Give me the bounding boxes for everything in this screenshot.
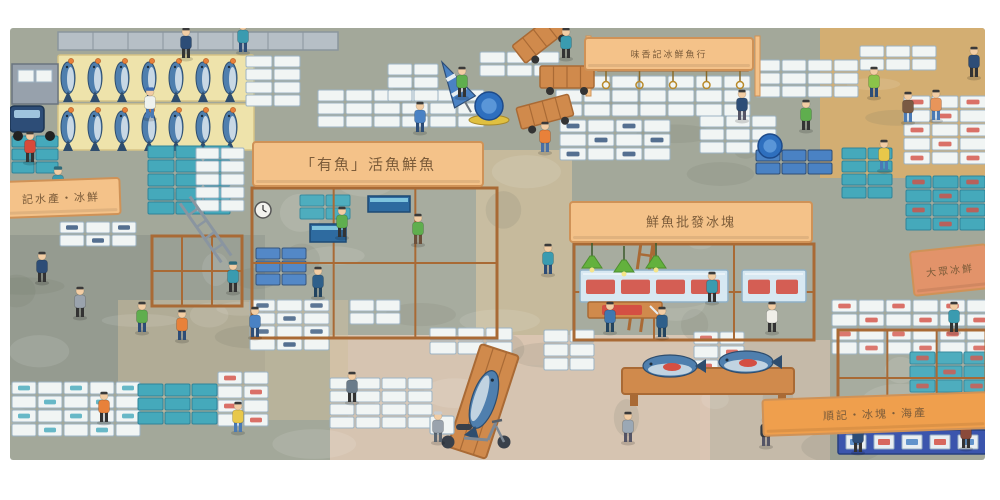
fish-in-box xyxy=(96,428,108,433)
foam-box xyxy=(808,150,832,161)
person-leg xyxy=(416,122,419,132)
fish-belly xyxy=(229,67,236,91)
foam-box xyxy=(274,82,300,93)
foam-box xyxy=(382,378,406,389)
person-torso xyxy=(337,215,348,228)
foam-box xyxy=(430,116,456,127)
foam-box xyxy=(912,46,936,57)
barrel-lid xyxy=(481,98,496,113)
scooter-seat xyxy=(456,424,472,430)
person-leg xyxy=(343,227,346,237)
person-leg xyxy=(182,48,185,58)
person-hair xyxy=(870,67,877,70)
foam-box xyxy=(374,103,400,114)
person-leg xyxy=(143,322,146,332)
foam-box xyxy=(86,222,110,233)
foam-box xyxy=(842,161,866,172)
auction-tag xyxy=(230,58,235,63)
foam-box xyxy=(244,400,268,412)
foam-box xyxy=(644,148,670,160)
person-leg xyxy=(611,322,614,332)
rail-post xyxy=(755,36,760,96)
person-torso xyxy=(737,98,748,111)
fish-in-box xyxy=(623,124,636,129)
foam-box xyxy=(408,391,432,402)
fish-in-box xyxy=(122,386,134,391)
person-hair xyxy=(541,122,548,125)
foam-box xyxy=(700,142,724,153)
foam-box xyxy=(640,104,666,116)
signboard-shade xyxy=(573,236,809,239)
fish-in-box xyxy=(939,194,952,199)
person-leg xyxy=(854,442,857,452)
person-leg xyxy=(738,110,741,120)
foam-box xyxy=(868,187,892,198)
person-leg xyxy=(458,87,461,97)
water-barrel xyxy=(758,134,782,158)
person-leg xyxy=(962,438,965,448)
person-leg xyxy=(955,322,958,332)
foam-box xyxy=(192,398,217,410)
foam-box xyxy=(644,120,670,132)
person-shadow xyxy=(759,445,773,450)
person-leg xyxy=(319,287,322,297)
foam-box xyxy=(544,358,568,370)
foam-box xyxy=(221,174,244,185)
person-leg xyxy=(439,432,442,442)
person-torso xyxy=(903,100,914,113)
person-torso xyxy=(347,380,358,393)
foam-box xyxy=(246,95,272,106)
auction-tag xyxy=(203,107,208,112)
floor-texture xyxy=(492,155,561,188)
foam-box xyxy=(148,174,174,186)
fish-eye xyxy=(201,66,203,68)
truck-cargo-box xyxy=(36,70,52,82)
person-hair xyxy=(26,132,33,135)
foam-box xyxy=(782,150,806,161)
person-leg xyxy=(38,272,41,282)
person-leg xyxy=(950,322,953,332)
foam-box xyxy=(36,149,58,160)
person-leg xyxy=(624,432,627,442)
person-shadow xyxy=(236,51,250,56)
person-leg xyxy=(348,392,351,402)
foam-box xyxy=(588,148,614,160)
person-torso xyxy=(137,310,148,323)
person-shadow xyxy=(97,421,111,426)
foam-box xyxy=(250,339,275,350)
foam-box xyxy=(304,339,329,350)
fish-in-box xyxy=(18,414,30,419)
sign-live-fish-text: 「有魚」活魚鮮魚 xyxy=(300,156,436,174)
foam-box xyxy=(612,76,638,88)
person-leg xyxy=(562,48,565,58)
person-hair xyxy=(314,267,321,270)
foam-box xyxy=(480,52,505,63)
person-leg xyxy=(229,282,232,292)
foam-box xyxy=(756,163,780,174)
foam-box xyxy=(668,104,694,116)
fish-in-box xyxy=(18,386,30,391)
fish-eye xyxy=(93,66,95,68)
tuna-slab xyxy=(656,280,685,294)
foam-box xyxy=(148,146,174,158)
display-case xyxy=(742,270,806,302)
foam-box xyxy=(374,116,400,127)
fish-eye xyxy=(201,115,203,117)
person-torso xyxy=(433,420,444,433)
cart-wheel xyxy=(580,87,588,95)
foam-box xyxy=(356,417,380,428)
banner-photo-fish xyxy=(934,439,946,445)
person-leg xyxy=(178,330,181,340)
table-leg xyxy=(630,394,638,406)
foam-box xyxy=(356,378,380,389)
person-shadow xyxy=(621,441,635,446)
person-shadow xyxy=(541,273,555,278)
fish-in-box xyxy=(919,318,932,323)
foam-box xyxy=(274,56,300,67)
person-leg xyxy=(875,87,878,97)
foam-box xyxy=(584,104,610,116)
floor-texture xyxy=(272,429,356,459)
foam-box xyxy=(696,90,722,102)
person-leg xyxy=(859,442,862,452)
auction-tag xyxy=(149,58,154,63)
foam-box xyxy=(246,82,272,93)
fish-eye xyxy=(147,66,149,68)
person-torso xyxy=(931,98,942,111)
person-torso xyxy=(657,315,668,328)
person-shadow xyxy=(538,151,552,156)
person-torso xyxy=(415,110,426,123)
auction-tag xyxy=(68,107,73,112)
fish-eye xyxy=(726,359,729,362)
foam-box xyxy=(138,412,163,424)
fish-in-box xyxy=(92,238,104,242)
fish-in-box xyxy=(651,138,664,143)
auction-tag xyxy=(122,58,127,63)
cutting-table xyxy=(588,302,662,318)
person-hair xyxy=(38,252,45,255)
foam-box xyxy=(668,90,694,102)
person-hat xyxy=(434,411,442,414)
foam-box xyxy=(616,134,642,146)
person-hair xyxy=(414,214,421,217)
foam-box xyxy=(346,116,372,127)
person-leg xyxy=(909,112,912,122)
auction-tag xyxy=(68,58,73,63)
foam-box xyxy=(640,76,666,88)
person-torso xyxy=(238,30,249,43)
person-shadow xyxy=(735,119,749,124)
foam-box xyxy=(932,152,958,164)
foam-box xyxy=(694,346,718,358)
fish-in-box xyxy=(70,386,82,391)
person-leg xyxy=(629,432,632,442)
person-leg xyxy=(541,142,544,152)
fish-tank xyxy=(368,196,410,212)
foam-box xyxy=(612,104,638,116)
foam-box xyxy=(859,300,884,312)
fish-eye xyxy=(66,66,68,68)
banner-photo-fish xyxy=(906,439,918,445)
person-leg xyxy=(314,287,317,297)
person-shadow xyxy=(603,331,617,336)
person-hair xyxy=(658,307,665,310)
foam-box xyxy=(842,174,866,185)
person-leg xyxy=(870,87,873,97)
person-leg xyxy=(138,322,141,332)
fish-in-box xyxy=(250,418,262,423)
foam-box xyxy=(165,384,190,396)
scooter-floorboard xyxy=(464,438,488,440)
fish-in-box xyxy=(939,114,952,119)
person-hair xyxy=(708,272,715,275)
floor-texture xyxy=(9,335,69,367)
foam-box xyxy=(148,160,174,172)
display-case xyxy=(580,270,728,302)
foam-box xyxy=(560,134,586,146)
sign-left-ice-text: 記水產・冰鮮 xyxy=(22,190,100,207)
person-hair xyxy=(182,28,189,31)
fish-cut xyxy=(663,363,681,371)
person-leg xyxy=(31,152,34,162)
foam-box xyxy=(12,424,36,436)
person-leg xyxy=(544,264,547,274)
person-leg xyxy=(773,322,776,332)
sign-wholesale-text: 鮮魚批發冰塊 xyxy=(646,215,736,231)
foam-box xyxy=(886,46,910,57)
person-shadow xyxy=(175,339,189,344)
foam-box xyxy=(414,77,438,88)
person-hair xyxy=(624,412,631,415)
sign-wholesale: 鮮魚批發冰塊 xyxy=(570,202,812,242)
foam-box xyxy=(507,65,532,76)
person-shadow xyxy=(311,296,325,301)
person-shadow xyxy=(248,336,262,341)
foam-box xyxy=(221,161,244,172)
person-leg xyxy=(807,120,810,130)
foam-box xyxy=(782,60,806,71)
foam-box xyxy=(244,372,268,384)
person-shadow xyxy=(655,336,669,341)
person-shadow xyxy=(877,169,891,174)
foam-box xyxy=(906,190,931,202)
person-hair xyxy=(768,302,775,305)
person-leg xyxy=(338,227,341,237)
box-stack xyxy=(904,96,986,164)
foam-box xyxy=(842,148,866,159)
foam-box xyxy=(38,410,62,422)
foam-box xyxy=(138,398,163,410)
fish-in-box xyxy=(967,128,980,133)
truck-cab xyxy=(10,106,44,132)
foam-box xyxy=(38,382,62,394)
foam-box xyxy=(696,104,722,116)
person-leg xyxy=(767,436,770,446)
person-hat xyxy=(229,261,237,264)
person-torso xyxy=(457,75,468,88)
floor-texture xyxy=(687,162,755,186)
foam-box xyxy=(408,404,432,415)
person-leg xyxy=(713,292,716,302)
illustration-group: 味香記冰鮮魚行「有魚」活魚鮮魚記水產・冰鮮鮮魚批發冰塊大眾冰鮮順記・冰塊・海產 xyxy=(0,13,992,464)
person-hair xyxy=(544,244,551,247)
person-leg xyxy=(26,152,29,162)
fish-in-box xyxy=(966,208,979,213)
fish-in-box xyxy=(967,156,980,161)
foam-box xyxy=(192,384,217,396)
person-shadow xyxy=(23,161,37,166)
person-shadow xyxy=(143,117,157,122)
person-leg xyxy=(546,142,549,152)
foam-box xyxy=(430,103,456,114)
person-torso xyxy=(707,280,718,293)
person-leg xyxy=(970,67,973,77)
fish-in-box xyxy=(939,142,952,147)
auction-tag xyxy=(95,58,100,63)
foam-box xyxy=(808,73,832,84)
person-hair xyxy=(338,207,345,210)
person-torso xyxy=(233,410,244,423)
foam-box xyxy=(834,73,858,84)
foam-box xyxy=(832,314,857,326)
lamp-bulb xyxy=(590,268,595,273)
person-leg xyxy=(937,110,940,120)
fish-eye xyxy=(228,115,230,117)
foam-box xyxy=(221,148,244,159)
person-shadow xyxy=(231,431,245,436)
illustration-stage: Watercolor cartoon illustration, overhea… xyxy=(0,0,1000,500)
fish-in-box xyxy=(595,138,608,143)
fish-in-box xyxy=(567,124,580,129)
person-torso xyxy=(145,96,156,109)
foam-box xyxy=(868,174,892,185)
person-leg xyxy=(663,327,666,337)
truck-cargo-box xyxy=(18,70,34,82)
person-hair xyxy=(606,302,613,305)
person-leg xyxy=(768,322,771,332)
fish-eye xyxy=(120,115,122,117)
tuna-slab xyxy=(621,280,650,294)
person-shadow xyxy=(455,96,469,101)
lamp-bulb xyxy=(622,272,627,277)
foam-box xyxy=(933,204,958,216)
foam-box xyxy=(960,110,986,122)
foam-box xyxy=(346,103,372,114)
foam-box xyxy=(480,65,505,76)
person-leg xyxy=(244,42,247,52)
foam-box xyxy=(356,404,380,415)
person-torso xyxy=(540,130,551,143)
fish-market-illustration: 味香記冰鮮魚行「有魚」活魚鮮魚記水產・冰鮮鮮魚批發冰塊大眾冰鮮順記・冰塊・海產 xyxy=(0,0,1000,500)
foam-box xyxy=(274,95,300,106)
sign-top-hook-stall-text: 味香記冰鮮魚行 xyxy=(630,49,707,61)
foam-box xyxy=(782,163,806,174)
person-shadow xyxy=(73,316,87,321)
fish-in-box xyxy=(283,342,296,346)
person-torso xyxy=(99,400,110,413)
person-leg xyxy=(146,108,149,118)
foam-box xyxy=(318,103,344,114)
foam-box xyxy=(382,391,406,402)
foam-box xyxy=(834,60,858,71)
person-hair xyxy=(416,102,423,105)
foam-box xyxy=(544,344,568,356)
cart-wheel xyxy=(546,87,554,95)
fish-in-box xyxy=(911,156,924,161)
person-shadow xyxy=(411,243,425,248)
box-stack xyxy=(138,384,217,424)
person-leg xyxy=(100,412,103,422)
fish-in-box xyxy=(224,376,236,381)
foam-box xyxy=(388,90,412,101)
fish-belly xyxy=(175,116,182,140)
fish-in-box xyxy=(66,225,78,229)
person-shadow xyxy=(851,451,865,456)
person-hat xyxy=(54,166,62,169)
foam-box xyxy=(808,163,832,174)
foam-box xyxy=(330,417,354,428)
person-torso xyxy=(177,318,188,331)
person-leg xyxy=(421,122,424,132)
person-leg xyxy=(353,392,356,402)
person-shadow xyxy=(135,331,149,336)
person-shadow xyxy=(929,119,943,124)
fish-eye xyxy=(174,66,176,68)
person-leg xyxy=(434,432,437,442)
fish-in-box xyxy=(912,208,925,213)
foam-box xyxy=(726,142,750,153)
tuna-slab xyxy=(748,280,770,294)
fish-eye xyxy=(174,115,176,117)
sign-right-edge: 大眾冰鮮 xyxy=(910,244,990,296)
fish-in-box xyxy=(911,128,924,133)
person-torso xyxy=(879,148,890,161)
foam-box xyxy=(192,412,217,424)
person-shadow xyxy=(867,96,881,101)
foam-box xyxy=(196,148,219,159)
fish-belly xyxy=(94,67,101,91)
foam-box xyxy=(960,190,985,202)
person-leg xyxy=(234,422,237,432)
fish-in-box xyxy=(122,414,134,419)
foam-box xyxy=(112,235,136,246)
person-hair xyxy=(562,28,569,31)
fish-eye xyxy=(228,66,230,68)
person-shadow xyxy=(705,301,719,306)
person-leg xyxy=(419,234,422,244)
person-torso xyxy=(228,270,239,283)
foam-box xyxy=(860,46,884,57)
person-torso xyxy=(250,315,261,328)
foam-box xyxy=(912,59,936,70)
foam-box xyxy=(612,90,638,102)
foam-box xyxy=(346,90,372,101)
person-shadow xyxy=(901,121,915,126)
person-shadow xyxy=(413,131,427,136)
signboard-shade xyxy=(256,180,480,183)
foam-box xyxy=(842,187,866,198)
fish-in-box xyxy=(623,152,636,157)
person-torso xyxy=(869,75,880,88)
tank-surface xyxy=(370,198,408,202)
person-hair xyxy=(348,372,355,375)
person-torso xyxy=(801,108,812,121)
person-hair xyxy=(234,402,241,405)
